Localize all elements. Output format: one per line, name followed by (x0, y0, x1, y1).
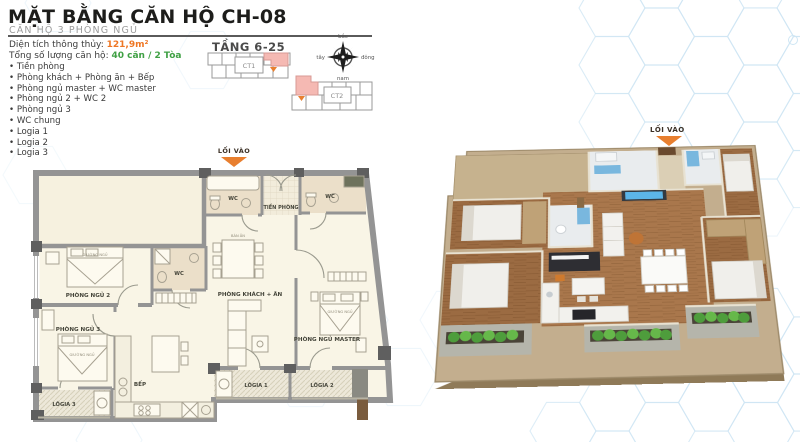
dining-table (222, 240, 254, 278)
logia1-label: LÔGIA 1 (244, 382, 268, 389)
kitchen-label: BẾP (134, 380, 146, 388)
page: MẶT BẰNG CĂN HỘ CH-08 CĂN HỘ 3 PHÒNG NGỦ… (0, 0, 800, 442)
living-label: PHÒNG KHÁCH + ĂN (218, 291, 283, 298)
area-value: 121,9m² (107, 40, 149, 50)
bed2-tag: GIƯỜNG NGỦ (83, 252, 108, 257)
master-bed-tag: GIƯỜNG NGỦ (328, 309, 353, 314)
dining-tag: BÀN ĂN (231, 233, 245, 238)
render-3d (433, 144, 789, 389)
feature-item: Phòng ngủ 3 (9, 105, 156, 116)
compass-south-label: nam (337, 76, 349, 82)
feature-item: Phòng ngủ 2 + WC 2 (9, 94, 156, 105)
kitchen-island (152, 336, 179, 372)
keyplan-ct2-label: CT2 (331, 92, 344, 100)
bedroom2-label: PHÒNG NGỦ 2 (66, 291, 111, 299)
compass-rose: bắc tây đông nam (310, 30, 380, 86)
area-line: Diện tích thông thủy: 121,9m² (9, 40, 148, 50)
wc-master-label: WC (325, 194, 335, 200)
compass-east-label: đông (361, 54, 375, 61)
entrance-arrow-2d (221, 157, 247, 167)
adjacent-unit-area (36, 173, 204, 246)
logia3-label: LÔGIA 3 (52, 401, 76, 408)
feature-item: Phòng ngủ master + WC master (9, 84, 156, 95)
feature-item: Phòng khách + Phòng ăn + Bếp (9, 73, 156, 84)
wc-shared-label: WC (174, 271, 184, 277)
entry-3d (657, 155, 686, 190)
count-value: 40 căn / 2 Tòa (111, 51, 181, 61)
washing-machine (216, 371, 232, 397)
floorplan-2d: LỐI VÀO (24, 142, 396, 442)
feature-item: Logia 1 (9, 127, 156, 138)
area-label: Diện tích thông thủy: (9, 40, 104, 50)
bedroom3-label: PHÒNG NGỦ 3 (56, 325, 101, 333)
sofa (228, 300, 261, 311)
kitchen-counter (115, 402, 214, 418)
entry-door-3d (658, 147, 676, 155)
bathtub (207, 176, 259, 190)
logia2-label: LÔGIA 2 (310, 382, 334, 389)
compass-west-label: tây (316, 54, 325, 61)
count-line: Tổng số lượng căn hộ: 40 căn / 2 Tòa (9, 51, 181, 61)
entrance-label-3d: LỐI VÀO (650, 126, 685, 134)
wc2-label: WC (228, 196, 238, 202)
entrance-label-2d: LỐI VÀO (218, 145, 250, 155)
master-label: PHÒNG NGỦ MASTER (294, 335, 361, 343)
feature-item: Tiền phòng (9, 62, 156, 73)
entrance-arrow-3d (656, 136, 682, 146)
keyplan-ct1-label: CT1 (243, 62, 256, 70)
feature-item: WC chung (9, 116, 156, 127)
bed3-tag: GIƯỜNG NGỦ (70, 352, 95, 357)
compass-north-label: bắc (338, 33, 348, 40)
count-label: Tổng số lượng căn hộ: (9, 51, 109, 61)
